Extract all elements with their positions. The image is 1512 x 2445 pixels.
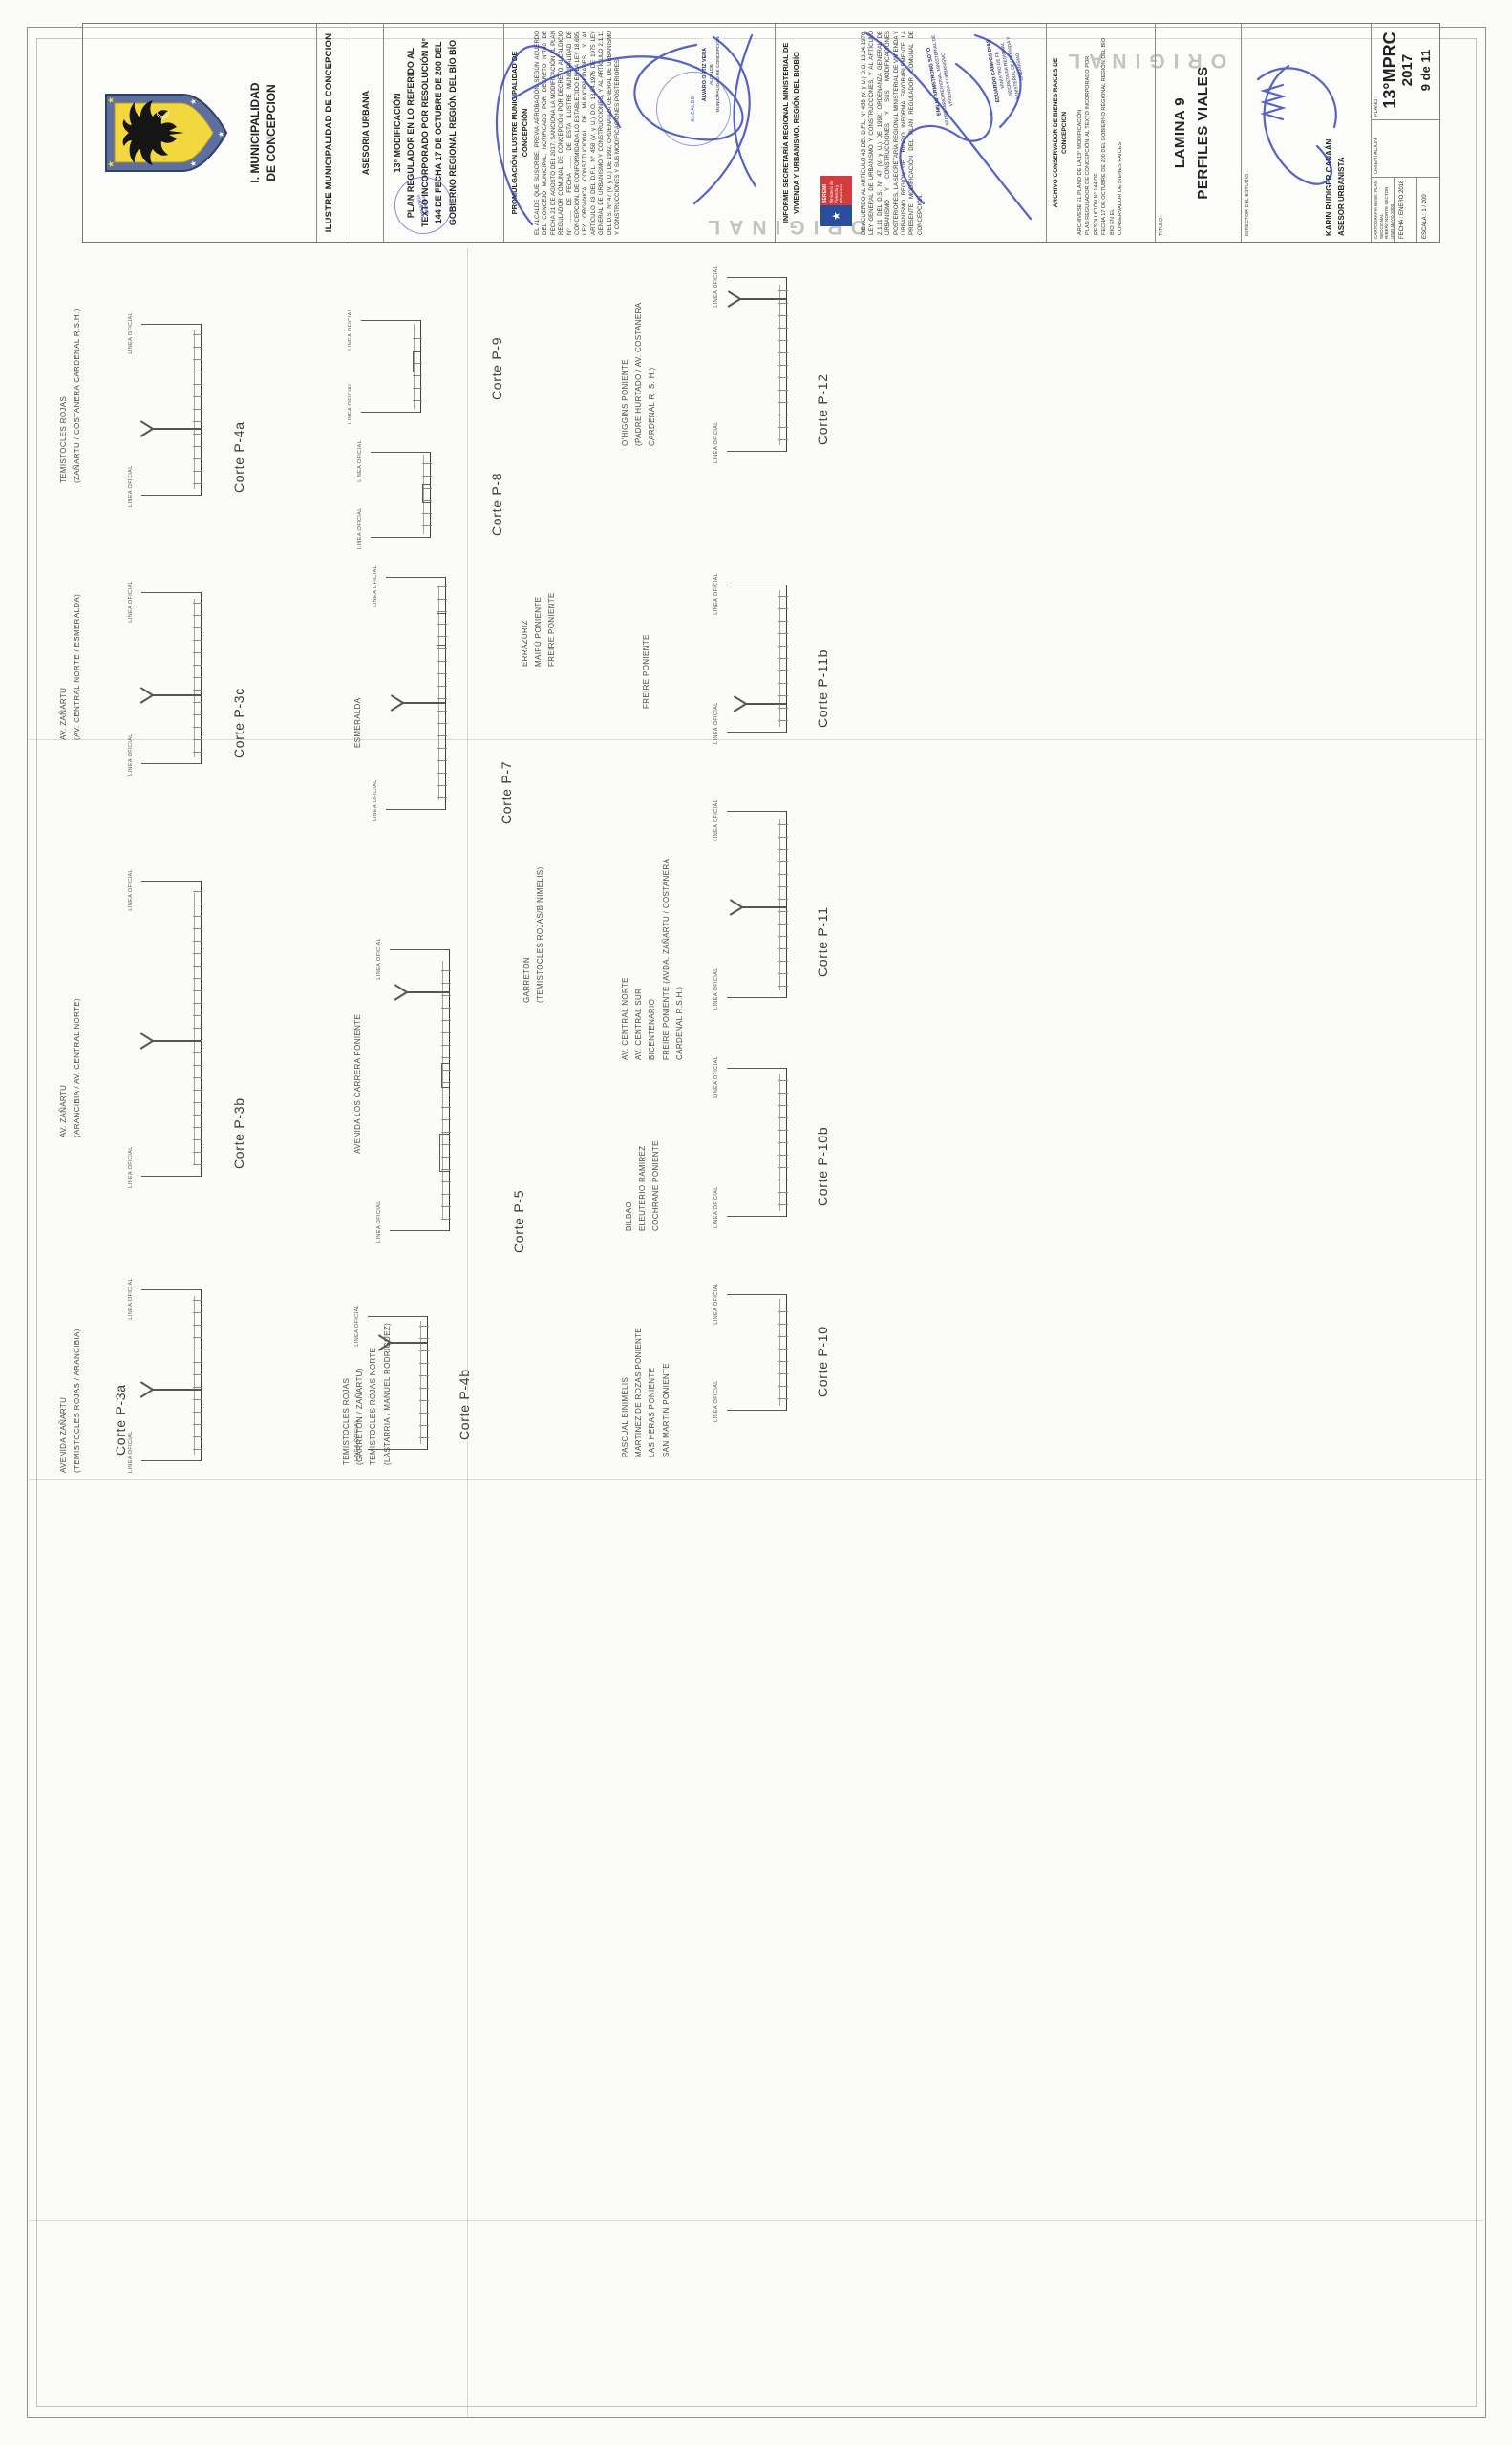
profile-caption-P-11: Corte P-11 xyxy=(815,906,830,977)
profile-tick xyxy=(778,415,788,415)
profile-tick xyxy=(778,1324,788,1325)
linea-oficial-label: LINEA OFICIAL xyxy=(128,869,134,911)
star-icon: ★ xyxy=(189,98,198,105)
profile-tick xyxy=(193,483,202,484)
profile-tick xyxy=(193,421,202,422)
property-line-bar xyxy=(386,577,445,578)
profile-tick xyxy=(193,1374,202,1375)
median-platform xyxy=(413,351,420,372)
fecha-cell: FECHA : ENERO 2018 xyxy=(1399,181,1405,239)
archivo-heading: ARCHIVO CONSERVADOR DE BIENES RAICES DE … xyxy=(1052,24,1069,242)
road-profile-P-9: LINEA OFICIALLINEA OFICIAL xyxy=(332,320,485,413)
profile-tick xyxy=(193,1424,202,1425)
linea-oficial-label: LINEA OFICIAL xyxy=(373,779,378,821)
profile-street-names-P-11b: FREIRE PONIENTE xyxy=(640,634,653,709)
logo-line: Ministerio de xyxy=(829,178,834,203)
profile-street-names-P-5: AVENIDA LOS CARRERA PONIENTE xyxy=(351,1014,365,1154)
profile-street-names-P-3c: AV. ZAÑARTU(AV. CENTRAL NORTE / ESMERALD… xyxy=(57,594,84,740)
profile-tick xyxy=(422,513,432,514)
property-line-bar xyxy=(390,949,449,950)
profile-tick xyxy=(193,434,202,435)
profile-guide-line xyxy=(779,819,780,990)
profile-tick xyxy=(778,1373,788,1374)
profile-tick xyxy=(778,961,788,962)
concepcion-coat-of-arms: ☾ ★ ★ ★ ★ ★ xyxy=(100,87,232,179)
profile-tick xyxy=(778,390,788,391)
profile-street-names-P-10: PASCUAL BINIMELISMARTINEZ DE ROZAS PONIE… xyxy=(619,1328,673,1457)
median-platform xyxy=(439,1134,449,1172)
property-line-bar xyxy=(141,881,201,882)
property-line-bar xyxy=(727,1410,786,1411)
profile-ground-line xyxy=(786,811,787,998)
profile-tick xyxy=(193,677,202,678)
profile-tick xyxy=(778,708,788,709)
profile-tick xyxy=(413,375,422,376)
profile-tick xyxy=(419,1388,429,1389)
property-line-bar xyxy=(141,324,201,325)
profile-tick xyxy=(778,670,788,671)
profile-tick xyxy=(437,673,447,674)
profile-tick xyxy=(193,372,202,372)
profile-tick xyxy=(193,1052,202,1053)
profile-tick xyxy=(778,402,788,403)
profile-caption-P-8: Corte P-8 xyxy=(489,473,504,536)
profile-tick xyxy=(778,365,788,366)
street-lamp-post xyxy=(738,298,786,300)
profile-tick xyxy=(437,648,447,649)
profile-tick xyxy=(778,1336,788,1337)
street-lamp-post xyxy=(405,991,449,993)
profile-tick xyxy=(778,837,788,838)
profile-ground-line xyxy=(427,1316,428,1450)
property-line-bar xyxy=(141,1176,201,1177)
director-name: KARIN RUDIGER CANAÁN xyxy=(1325,139,1333,236)
alcalde-signature-name: ÁLVARO ORTIZ VERA ALCALDE MUNICIPALIDAD … xyxy=(702,28,723,121)
linea-oficial-label: LINEA OFICIAL xyxy=(713,266,719,308)
star-icon: ★ xyxy=(217,131,225,138)
profile-tick xyxy=(441,1032,451,1033)
profile-tick xyxy=(419,1400,429,1401)
linea-oficial-label: LINEA OFICIAL xyxy=(713,421,719,463)
profile-tick xyxy=(778,1080,788,1081)
profile-tick xyxy=(193,1115,202,1116)
linea-oficial-label: LINEA OFICIAL xyxy=(128,733,134,776)
scanned-sheet-page: LINEA OFICIALLINEA OFICIALCorte P-3aAVEN… xyxy=(0,0,1512,2445)
street-lamp-post xyxy=(740,906,786,908)
profile-tick xyxy=(778,824,788,825)
profile-street-names-P-4b: TEMISTOCLES ROJAS(GARRETON / ZAÑARTU)TEM… xyxy=(340,1323,394,1465)
signer-title: ALCALDE xyxy=(710,28,716,121)
linea-oficial-label: LINEA OFICIAL xyxy=(713,573,719,615)
informe-heading-line: VIVIENDA Y URBANISMO, REGIÓN DEL BIOBÍO xyxy=(791,24,801,242)
profile-tick xyxy=(193,1127,202,1128)
profile-ground-line xyxy=(201,592,202,764)
archivo-body: ARCHIVESE EL PLANO DE LA 13° MODIFICACIÓ… xyxy=(1076,24,1124,242)
profile-tick xyxy=(778,1311,788,1312)
profile-tick xyxy=(437,785,447,786)
director-title: ASESOR URBANISTA xyxy=(1337,157,1346,236)
archivo-line: ARCHIVESE EL PLANO DE LA 13° MODIFICACIÓ… xyxy=(1076,31,1084,235)
property-line-bar xyxy=(141,763,201,764)
profile-tick xyxy=(193,928,202,929)
profile-tick xyxy=(437,711,447,712)
profile-tick xyxy=(193,471,202,472)
profile-tick xyxy=(441,1107,451,1108)
profile-tick xyxy=(419,1326,429,1327)
property-line-bar xyxy=(361,320,420,321)
minvu-seremi-logo: ★ SEREMI Ministerio de Vivienda y Urbani… xyxy=(820,176,852,226)
profile-tick xyxy=(441,1219,451,1220)
profile-tick xyxy=(193,891,202,892)
road-profile-P-8: LINEA OFICIALLINEA OFICIAL xyxy=(342,452,495,538)
profile-tick xyxy=(778,328,788,329)
profile-tick xyxy=(193,1387,202,1388)
profile-tick xyxy=(437,723,447,724)
median-platform xyxy=(422,484,430,503)
property-line-bar xyxy=(141,592,201,593)
linea-oficial-label: LINEA OFICIAL xyxy=(376,938,382,980)
linea-oficial-label: LINEA OFICIAL xyxy=(357,507,363,549)
plano-code: 13°MPRC xyxy=(1380,24,1400,117)
profile-tick xyxy=(193,458,202,459)
linea-oficial-label: LINEA OFICIAL xyxy=(373,565,378,607)
profile-tick xyxy=(778,695,788,696)
profile-tick xyxy=(437,760,447,761)
median-platform xyxy=(437,613,445,646)
street-lamp-arm xyxy=(140,694,154,703)
profile-tick xyxy=(778,849,788,850)
property-line-bar xyxy=(727,451,786,452)
titulo-label: TITULO : xyxy=(1159,215,1164,236)
ministro-de-fe-name: EDUARDO CAMPOS DIAS MINISTRO DE FE SECRE… xyxy=(984,26,1031,113)
profile-tick xyxy=(419,1437,429,1438)
cartografia-cell: CARTOGRAFIA BASE: PLAN SECCIONAL RIBERA … xyxy=(1374,180,1395,239)
profile-tick xyxy=(193,978,202,979)
linea-oficial-label: LINEA OFICIAL xyxy=(128,1146,134,1188)
profile-tick xyxy=(778,1386,788,1387)
profile-tick xyxy=(441,1020,451,1021)
property-line-bar xyxy=(727,1068,786,1069)
road-profile-P-3a: LINEA OFICIALLINEA OFICIAL xyxy=(113,1289,266,1461)
profile-street-names-P-3a: AVENIDA ZAÑARTU(TEMISTOCLES ROJAS / ARAN… xyxy=(57,1329,84,1473)
profile-tick xyxy=(413,338,422,339)
street-lamp-post xyxy=(389,1342,427,1344)
profile-tick xyxy=(441,1132,451,1133)
street-lamp-post xyxy=(151,428,201,430)
profile-street-names-P-3b: AV. ZAÑARTU(ARANCIBIA / AV. CENTRAL NORT… xyxy=(57,998,84,1137)
street-lamp-arm xyxy=(140,428,154,436)
profile-tick xyxy=(193,941,202,942)
road-profile-P-7: LINEA OFICIALLINEA OFICIAL xyxy=(357,577,510,810)
linea-oficial-label: LINEA OFICIAL xyxy=(357,440,363,482)
plan-sheet: LINEA OFICIALLINEA OFICIALCorte P-3aAVEN… xyxy=(0,0,1512,2445)
plano-label: PLANO : xyxy=(1374,96,1379,117)
profile-tick xyxy=(422,525,432,526)
cartografia-line: CARTOGRAFIA BASE: PLAN SECCIONAL xyxy=(1374,180,1384,239)
promulgacion-body: EL ALCALDE QUE SUSCRIBE, PREVIA APROBACI… xyxy=(534,24,622,242)
profile-tick xyxy=(778,439,788,440)
profile-tick xyxy=(441,1095,451,1095)
profile-guide-line xyxy=(194,893,195,1165)
profile-tick xyxy=(778,936,788,937)
escala-cell: ESCALA : 1 / 200 xyxy=(1422,194,1428,239)
star-icon: ★ xyxy=(106,160,116,168)
crescent-moon-icon: ☾ xyxy=(154,105,173,120)
profile-caption-P-9: Corte P-9 xyxy=(489,337,504,400)
profile-tick xyxy=(419,1413,429,1414)
informe-body: DE ACUERDO AL ARTÍCULO 43 DEL D.F.L. N° … xyxy=(861,24,925,242)
property-line-bar xyxy=(371,452,430,453)
profile-street-names-P-10b: BILBAOELEUTERIO RAMIREZCOCHRANE PONIENTE xyxy=(623,1140,664,1231)
entity-row: ILUSTRE MUNICIPALIDAD DE CONCEPCION xyxy=(324,24,334,242)
sheet-title-line2: PERFILES VIALES xyxy=(1195,24,1211,242)
property-line-bar xyxy=(390,1230,449,1231)
profile-tick xyxy=(437,735,447,736)
profile-tick xyxy=(778,720,788,721)
profile-tick xyxy=(778,886,788,887)
profile-tick xyxy=(778,427,788,428)
property-line-bar xyxy=(727,1294,786,1295)
profile-tick xyxy=(778,683,788,684)
profile-caption-P-4a: Corte P-4a xyxy=(231,421,246,493)
profile-tick xyxy=(413,388,422,389)
profile-tick xyxy=(193,652,202,653)
profile-street-names-P-7: ESMERALDA xyxy=(351,698,365,749)
profile-tick xyxy=(437,748,447,749)
profile-tick xyxy=(193,1003,202,1004)
profile-tick xyxy=(422,463,432,464)
property-line-bar xyxy=(141,495,201,496)
linea-oficial-label: LINEA OFICIAL xyxy=(713,1283,719,1325)
profile-tick xyxy=(193,1312,202,1313)
profile-tick xyxy=(193,1362,202,1363)
profile-tick xyxy=(437,586,447,587)
property-line-bar xyxy=(141,1289,201,1290)
profile-tick xyxy=(193,615,202,616)
profile-tick xyxy=(778,948,788,949)
street-lamp-arm xyxy=(394,991,408,1000)
profile-tick xyxy=(193,1015,202,1016)
profile-tick xyxy=(778,1130,788,1131)
profile-tick xyxy=(778,1142,788,1143)
profile-tick xyxy=(193,640,202,641)
profile-tick xyxy=(193,1102,202,1103)
property-line-bar xyxy=(141,1460,201,1461)
profile-street-names-P-4a: TEMISTOCLES ROJAS(ZAÑARTU / COSTANERA CA… xyxy=(57,308,84,483)
profile-tick xyxy=(441,1045,451,1046)
street-lamp-arm xyxy=(734,703,747,712)
linea-oficial-label: LINEA OFICIAL xyxy=(713,1056,719,1098)
profile-guide-line xyxy=(194,330,195,489)
profile-tick xyxy=(778,315,788,316)
profile-caption-P-3b: Corte P-3b xyxy=(231,1097,246,1169)
property-line-bar xyxy=(371,537,430,538)
property-line-bar xyxy=(727,732,786,733)
profile-tick xyxy=(422,476,432,477)
logo-line: Urbanismo xyxy=(839,178,843,203)
profile-tick xyxy=(193,1325,202,1326)
profile-tick xyxy=(778,899,788,900)
profile-tick xyxy=(193,1337,202,1338)
profile-tick xyxy=(419,1363,429,1364)
street-lamp-post xyxy=(744,703,786,705)
profile-tick xyxy=(778,924,788,925)
street-name-label-0: ERRAZURIZMAIPÚ PONIENTEFREIRE PONIENTE xyxy=(519,592,560,667)
plano-sheet-number: 9 de 11 xyxy=(1418,24,1433,117)
cartografia-line: RIBERA NORTE SECTOR UNO MAYO 2000 xyxy=(1384,180,1395,239)
property-line-bar xyxy=(368,1316,427,1317)
profile-caption-P-12: Corte P-12 xyxy=(815,373,830,445)
profile-caption-P-7: Corte P-7 xyxy=(499,761,514,824)
street-lamp-arm xyxy=(728,298,741,307)
profile-tick xyxy=(193,1164,202,1165)
linea-oficial-label: LINEA OFICIAL xyxy=(128,581,134,623)
plano-year: 2017 xyxy=(1399,24,1416,117)
profile-tick xyxy=(193,990,202,991)
profile-tick xyxy=(193,603,202,604)
linea-oficial-label: LINEA OFICIAL xyxy=(713,702,719,744)
profile-tick xyxy=(419,1350,429,1351)
profile-tick xyxy=(193,359,202,360)
profile-tick xyxy=(778,303,788,304)
profile-tick xyxy=(441,995,451,996)
profile-tick xyxy=(778,1167,788,1168)
org-name-line2: DE CONCEPCION xyxy=(264,24,279,242)
property-line-bar xyxy=(727,997,786,998)
profile-tick xyxy=(778,340,788,341)
profile-tick xyxy=(778,596,788,597)
profile-tick xyxy=(193,752,202,753)
profile-tick xyxy=(441,1206,451,1207)
profile-tick xyxy=(193,702,202,703)
linea-oficial-label: LINEA OFICIAL xyxy=(713,967,719,1010)
profile-tick xyxy=(778,621,788,622)
promulgacion-heading: PROMULGACIÓN ILUSTRE MUNICIPALIDAD DE CO… xyxy=(509,24,531,242)
profile-caption-P-10b: Corte P-10b xyxy=(815,1127,830,1206)
profile-tick xyxy=(778,1155,788,1156)
street-lamp-arm xyxy=(730,906,743,915)
informe-heading: INFORME SECRETARÍA REGIONAL MINISTERIAL … xyxy=(780,24,802,242)
profile-tick xyxy=(413,400,422,401)
profile-tick xyxy=(441,1181,451,1182)
orientacion-label: ORIENTACION xyxy=(1374,138,1379,174)
profile-tick xyxy=(778,1349,788,1350)
linea-oficial-label: LINEA OFICIAL xyxy=(713,1186,719,1228)
profile-tick xyxy=(778,874,788,875)
profile-tick xyxy=(778,658,788,659)
profile-tick xyxy=(778,646,788,647)
department-row: ASESORIA URBANA xyxy=(359,24,373,242)
profile-tick xyxy=(193,690,202,691)
profile-caption-P-4b: Corte P-4b xyxy=(457,1369,472,1440)
profile-caption-P-3a: Corte P-3a xyxy=(113,1384,128,1456)
archivo-line: PLAN REGULADOR DE CONCEPCIÓN, AL TEXTO I… xyxy=(1084,31,1100,235)
street-name-label-1: GARRETON(TEMISTOCLES ROJAS/BINIMELIS) xyxy=(521,867,547,1003)
property-line-bar xyxy=(727,277,786,278)
street-lamp-arm xyxy=(391,702,404,711)
profile-tick xyxy=(193,727,202,728)
profile-tick xyxy=(193,1028,202,1029)
profile-tick xyxy=(778,973,788,974)
profile-tick xyxy=(419,1338,429,1339)
profile-tick xyxy=(778,861,788,862)
org-name-line1: I. MUNICIPALIDAD xyxy=(247,24,263,242)
profile-caption-P-3c: Corte P-3c xyxy=(231,688,246,758)
profile-tick xyxy=(437,773,447,774)
profile-tick xyxy=(778,986,788,987)
profile-tick xyxy=(437,797,447,798)
profile-street-names-P-12: O'HIGGINS PONIENTE(PADRE HURTADO / AV. C… xyxy=(619,303,660,446)
linea-oficial-label: LINEA OFICIAL xyxy=(376,1201,382,1243)
profile-tick xyxy=(193,1065,202,1066)
profile-tick xyxy=(778,377,788,378)
profile-tick xyxy=(778,1361,788,1362)
linea-oficial-label: LINEA OFICIAL xyxy=(128,465,134,507)
profile-tick xyxy=(193,627,202,628)
seremi-signature-name: EMILIO ARMSTRONG SOTO SECRETARIO REGIONA… xyxy=(924,31,959,130)
profile-tick xyxy=(193,904,202,904)
linea-oficial-label: LINEA OFICIAL xyxy=(348,308,353,351)
profile-tick xyxy=(778,1105,788,1106)
profile-tick xyxy=(193,446,202,447)
signer-name: ÁLVARO ORTIZ VERA xyxy=(702,28,710,121)
profile-caption-P-11b: Corte P-11b xyxy=(815,649,830,728)
profile-tick xyxy=(778,1117,788,1118)
profile-tick xyxy=(193,714,202,715)
profile-ground-line xyxy=(201,1289,202,1461)
property-line-bar xyxy=(361,412,420,413)
street-lamp-arm xyxy=(140,1040,154,1049)
profile-ground-line xyxy=(201,881,202,1177)
profile-street-names-P-11: AV. CENTRAL NORTEAV. CENTRAL SURBICENTEN… xyxy=(619,859,687,1060)
profile-tick xyxy=(193,916,202,917)
director-label: DIRECTOR DEL ESTUDIO : xyxy=(1245,171,1250,236)
property-line-bar xyxy=(386,809,445,810)
archivo-line: FECHA 17 DE OCTUBRE DE 200 DEL GOBIERNO … xyxy=(1100,31,1117,235)
street-lamp-arm xyxy=(140,1389,154,1397)
profile-tick xyxy=(193,665,202,666)
informe-heading-line: INFORME SECRETARÍA REGIONAL MINISTERIAL … xyxy=(780,24,791,242)
linea-oficial-label: LINEA OFICIAL xyxy=(128,312,134,354)
minvu-logo-text: SEREMI Ministerio de Vivienda y Urbanism… xyxy=(820,176,852,205)
street-lamp-post xyxy=(151,1040,201,1042)
profile-tick xyxy=(441,1119,451,1120)
profile-tick xyxy=(419,1425,429,1426)
profile-tick xyxy=(193,1412,202,1413)
profile-ground-line xyxy=(449,949,450,1231)
profile-tick xyxy=(193,1350,202,1350)
property-line-bar xyxy=(727,811,786,812)
street-lamp-post xyxy=(401,702,445,704)
profiles-layer: LINEA OFICIALLINEA OFICIALCorte P-3aAVEN… xyxy=(0,0,1512,2445)
profile-tick xyxy=(193,396,202,397)
profile-tick xyxy=(193,1077,202,1078)
profile-tick xyxy=(437,661,447,662)
star-icon: ★ xyxy=(189,160,198,167)
title-block: ☾ ★ ★ ★ ★ ★ I. MUNICIPALIDAD DE CONCEPCI… xyxy=(82,23,1440,243)
linea-oficial-label: LINEA OFICIAL xyxy=(128,1431,134,1473)
stamp-text: ALCALDE xyxy=(691,96,696,121)
profile-tick xyxy=(193,409,202,410)
profile-tick xyxy=(778,911,788,912)
profile-tick xyxy=(778,1093,788,1094)
profile-tick xyxy=(193,1399,202,1400)
profile-tick xyxy=(441,1008,451,1009)
sheet-title-line1: LAMINA 9 xyxy=(1172,24,1188,242)
profile-tick xyxy=(778,608,788,609)
profile-tick xyxy=(193,966,202,967)
profile-ground-line xyxy=(201,324,202,496)
